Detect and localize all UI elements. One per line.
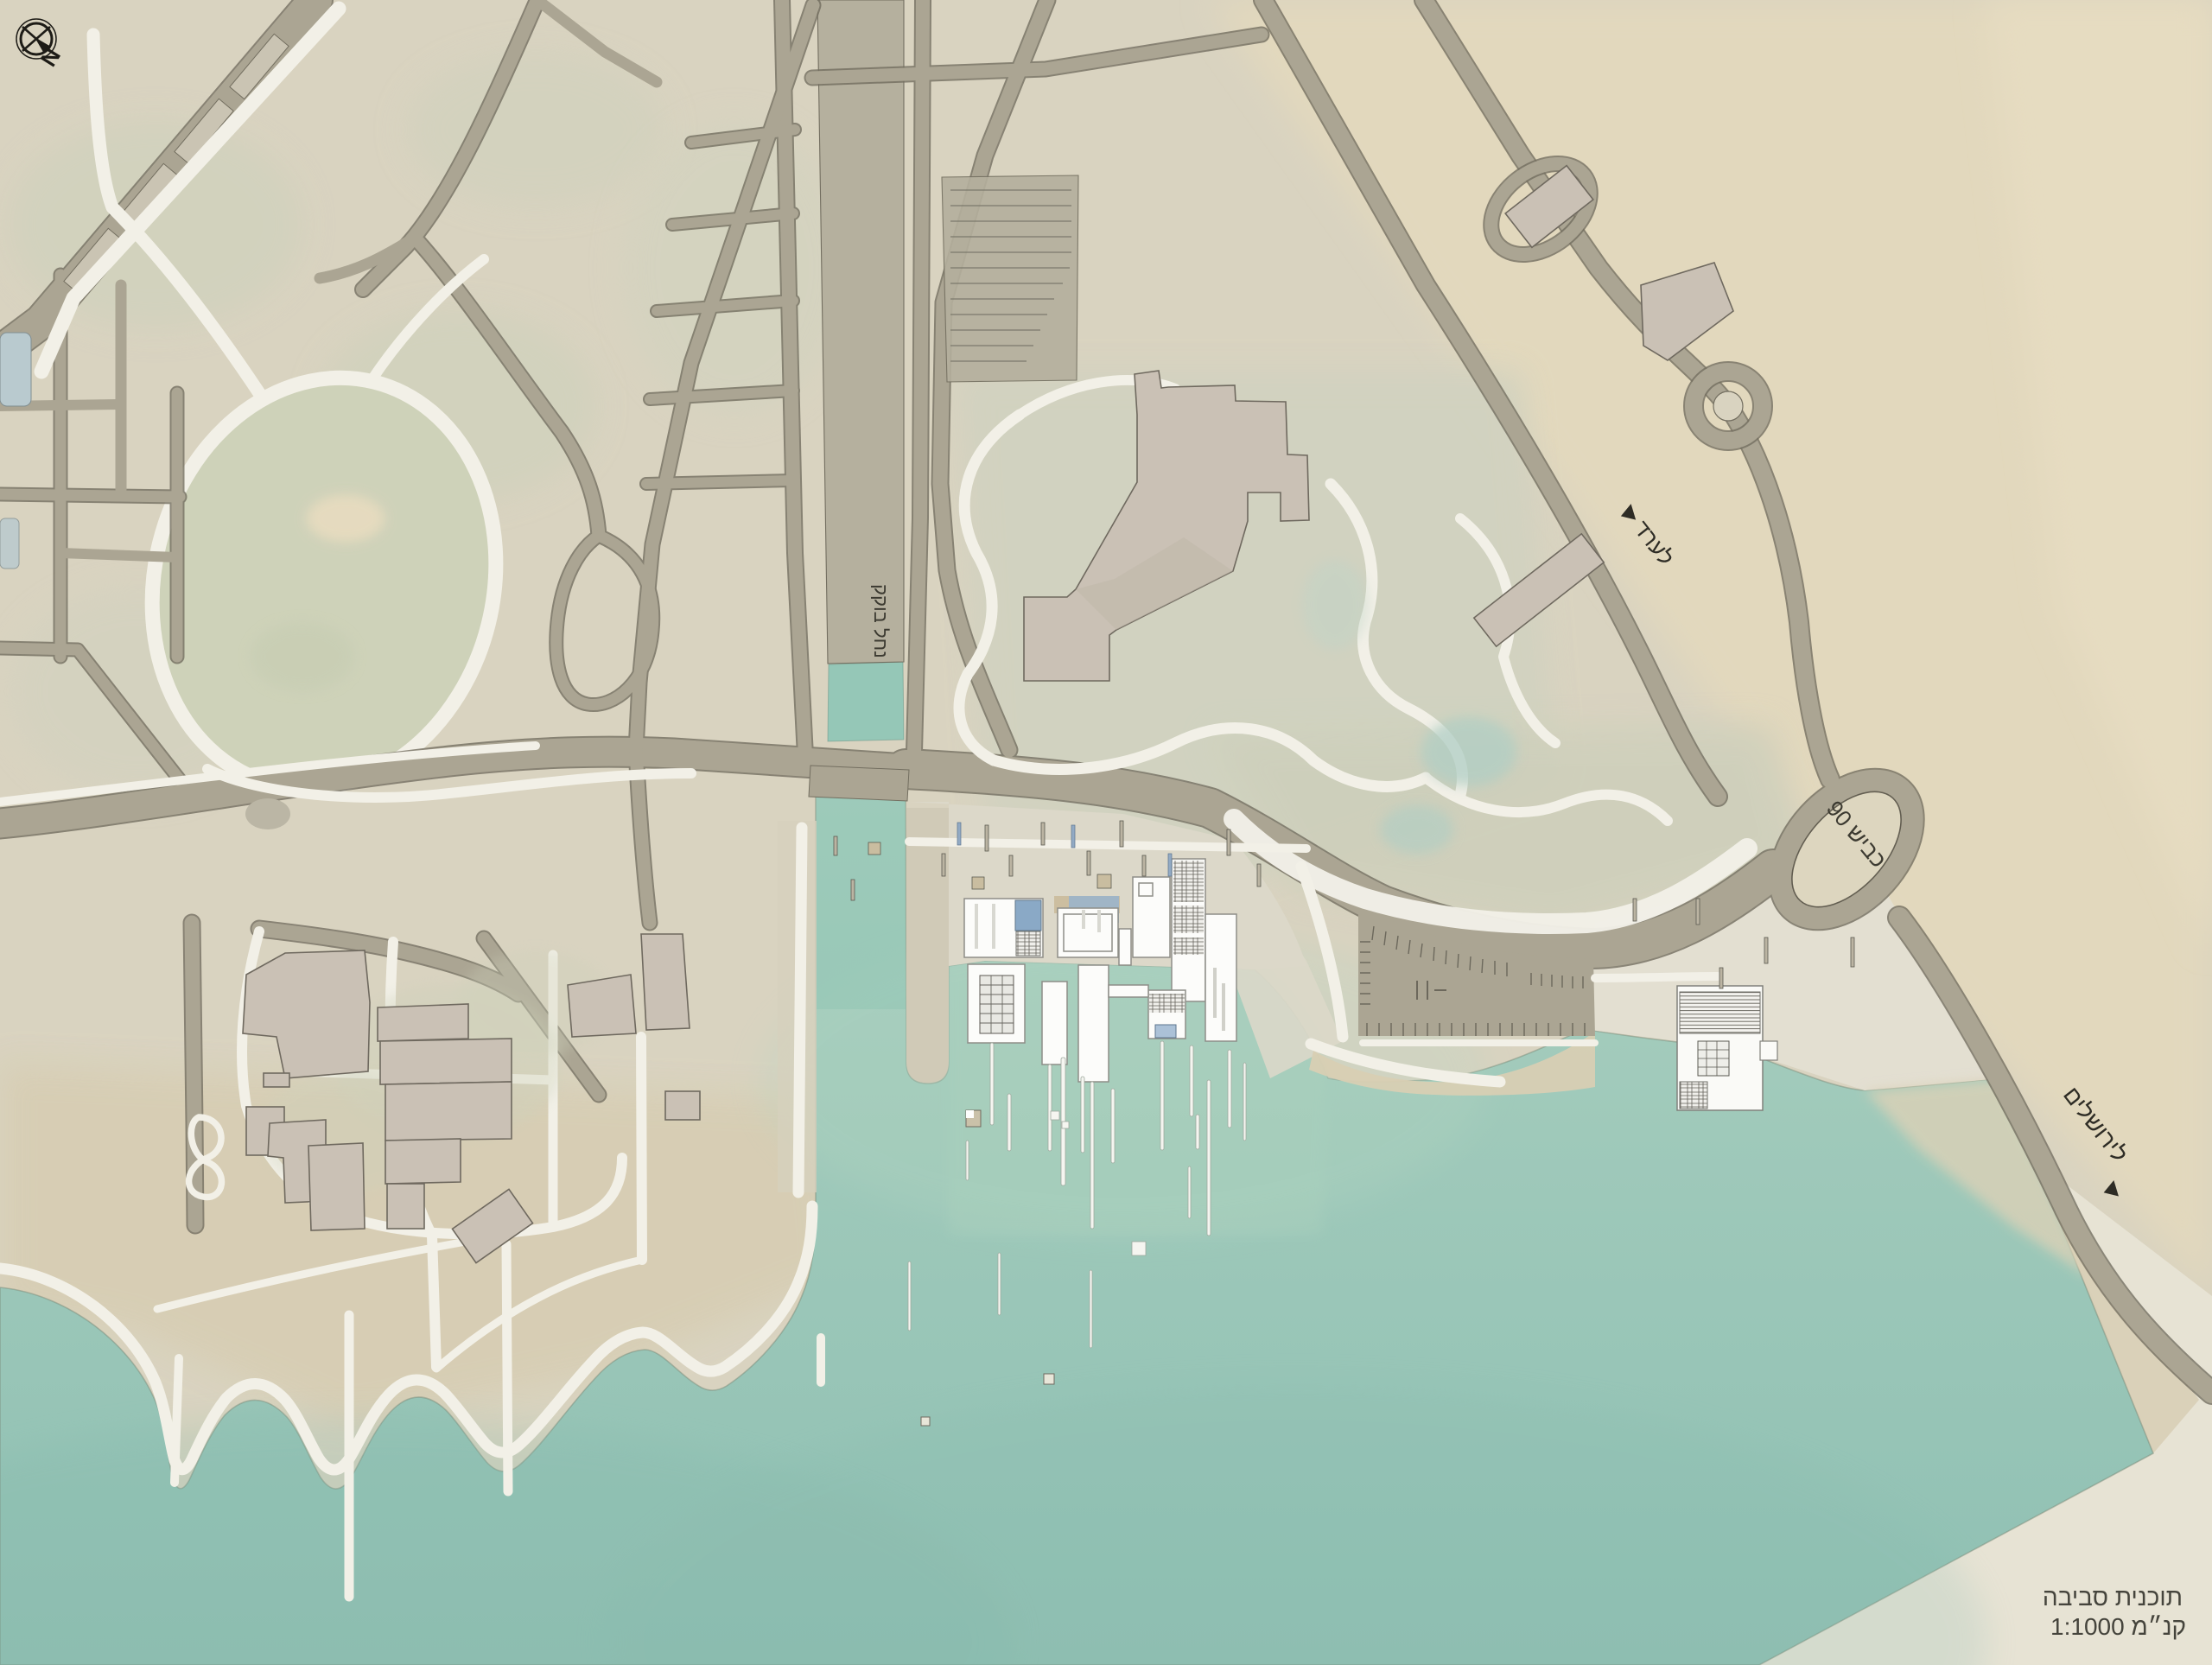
svg-text:נחל בוקק: נחל בוקק	[870, 584, 892, 658]
svg-text:תוכנית סביבה: תוכנית סביבה	[2043, 1584, 2183, 1611]
svg-text:קנ״מ 1:1000: קנ״מ 1:1000	[2050, 1613, 2186, 1640]
